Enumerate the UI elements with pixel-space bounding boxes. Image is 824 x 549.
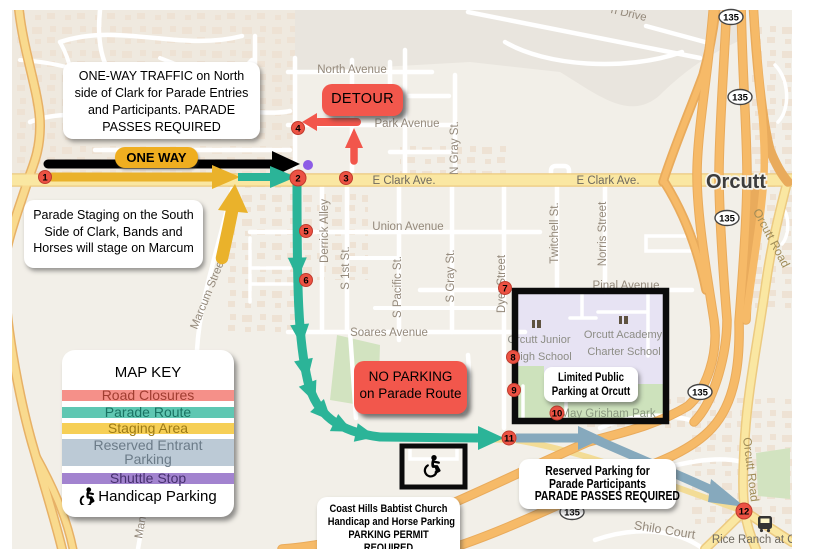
svg-text:E Clark Ave.: E Clark Ave. xyxy=(372,175,435,187)
svg-text:135: 135 xyxy=(719,214,736,225)
svg-text:8: 8 xyxy=(510,353,515,364)
svg-text:Norris Street: Norris Street xyxy=(597,201,609,266)
svg-text:3: 3 xyxy=(343,174,348,185)
svg-text:2: 2 xyxy=(295,174,300,185)
svg-text:High School: High School xyxy=(512,351,571,363)
svg-text:S 1st St.: S 1st St. xyxy=(340,246,352,289)
svg-text:S Gray St.: S Gray St. xyxy=(445,249,457,302)
svg-text:Union Avenue: Union Avenue xyxy=(372,221,443,233)
svg-text:Charter School: Charter School xyxy=(587,346,660,358)
svg-text:9: 9 xyxy=(511,386,516,397)
svg-text:Orcutt Academy: Orcutt Academy xyxy=(584,329,663,341)
svg-text:5: 5 xyxy=(303,227,309,238)
svg-text:E Clark Ave.: E Clark Ave. xyxy=(576,175,639,187)
svg-text:10: 10 xyxy=(552,409,563,420)
svg-text:135: 135 xyxy=(692,388,709,399)
svg-text:1: 1 xyxy=(42,173,48,184)
svg-text:6: 6 xyxy=(303,276,308,287)
svg-text:North Avenue: North Avenue xyxy=(317,64,386,76)
svg-text:Rice Ranch at O: Rice Ranch at O xyxy=(712,534,796,546)
svg-text:Park Avenue: Park Avenue xyxy=(374,118,439,130)
svg-text:Orcutt: Orcutt xyxy=(706,171,766,193)
svg-text:Twitchell St.: Twitchell St. xyxy=(549,202,561,263)
svg-text:12: 12 xyxy=(739,507,750,518)
svg-text:7: 7 xyxy=(502,284,507,295)
svg-text:4: 4 xyxy=(295,124,301,135)
svg-text:135: 135 xyxy=(723,13,740,24)
svg-text:Derrick Alley: Derrick Alley xyxy=(319,199,331,263)
svg-text:11: 11 xyxy=(504,434,515,445)
svg-text:Soares Avenue: Soares Avenue xyxy=(350,327,428,339)
svg-text:135: 135 xyxy=(564,508,581,519)
svg-text:N Gray St.: N Gray St. xyxy=(449,121,461,175)
svg-text:S Pacific St.: S Pacific St. xyxy=(392,256,404,318)
svg-text:135: 135 xyxy=(732,93,749,104)
